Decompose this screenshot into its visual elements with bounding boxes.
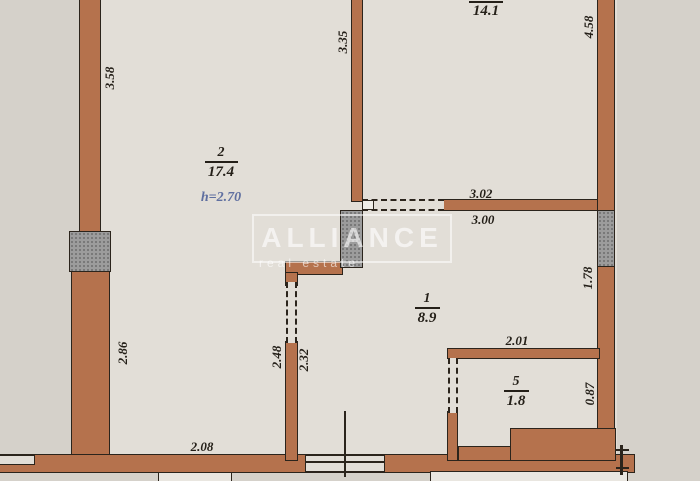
window-bottom-left-edge — [0, 455, 35, 465]
room-label-5: 5 1.8 — [486, 372, 546, 410]
wall-left-top — [79, 0, 101, 234]
room-number: 2 — [205, 145, 238, 163]
wall-middle-vertical — [351, 0, 363, 202]
floorplan: 3.58 2.86 3.35 4.58 3.02 3.00 1.78 2.01 … — [0, 0, 700, 481]
watermark-title: ALLIANCE — [254, 216, 450, 260]
dimension-label: 3.58 — [102, 67, 118, 90]
room-area: 14.1 — [469, 1, 503, 21]
room-height-note: h=2.70 — [186, 190, 256, 206]
room-number: 5 — [504, 374, 529, 392]
dimension-label: 2.48 — [269, 346, 285, 369]
wall-end-tick-bottom — [616, 467, 629, 469]
room-area: 8.9 — [397, 309, 457, 327]
room-label-2: 2 17.4 h=2.70 — [186, 143, 256, 206]
balcony-outline-right — [430, 471, 628, 481]
wall-room5-bottom-right — [510, 428, 616, 461]
window-axis-line — [344, 411, 346, 477]
wall-end-tick-top — [616, 449, 629, 451]
dimension-label: 2.86 — [115, 342, 131, 365]
watermark: ALLIANCE real estate — [252, 214, 452, 263]
door-opening-room5 — [448, 358, 458, 413]
dimension-label: 0.87 — [582, 383, 598, 406]
wall-topright-horizontal — [443, 199, 598, 211]
dimension-label: 3.00 — [472, 212, 495, 228]
dimension-label: 3.35 — [335, 31, 351, 54]
dimension-label: 2.32 — [296, 349, 312, 372]
wall-room5-left — [447, 411, 458, 461]
pillar-left — [69, 231, 111, 272]
room-area: 17.4 — [186, 163, 256, 181]
room-label-1: 1 8.9 — [397, 289, 457, 327]
pillar-right — [597, 210, 615, 267]
wall-right-top — [597, 0, 615, 213]
wall-room5-top — [447, 348, 600, 359]
room-number: 1 — [415, 291, 440, 309]
watermark-subtitle: real estate — [259, 256, 359, 270]
room-label-top: 14.1 — [458, 1, 514, 21]
room-area: 1.8 — [486, 392, 546, 410]
dimension-label: 2.01 — [506, 333, 529, 349]
balcony-outline-left — [158, 472, 232, 481]
door-opening-top-cap — [362, 200, 374, 210]
door-opening-top — [362, 199, 444, 211]
wall-left-bottom — [71, 270, 110, 462]
dimension-label: 2.08 — [191, 439, 214, 455]
dimension-label: 1.78 — [580, 267, 596, 290]
wall-room5-bottom-left — [458, 446, 512, 461]
dimension-label: 4.58 — [581, 16, 597, 39]
dimension-label: 3.02 — [470, 186, 493, 202]
door-opening-room2 — [286, 282, 297, 343]
